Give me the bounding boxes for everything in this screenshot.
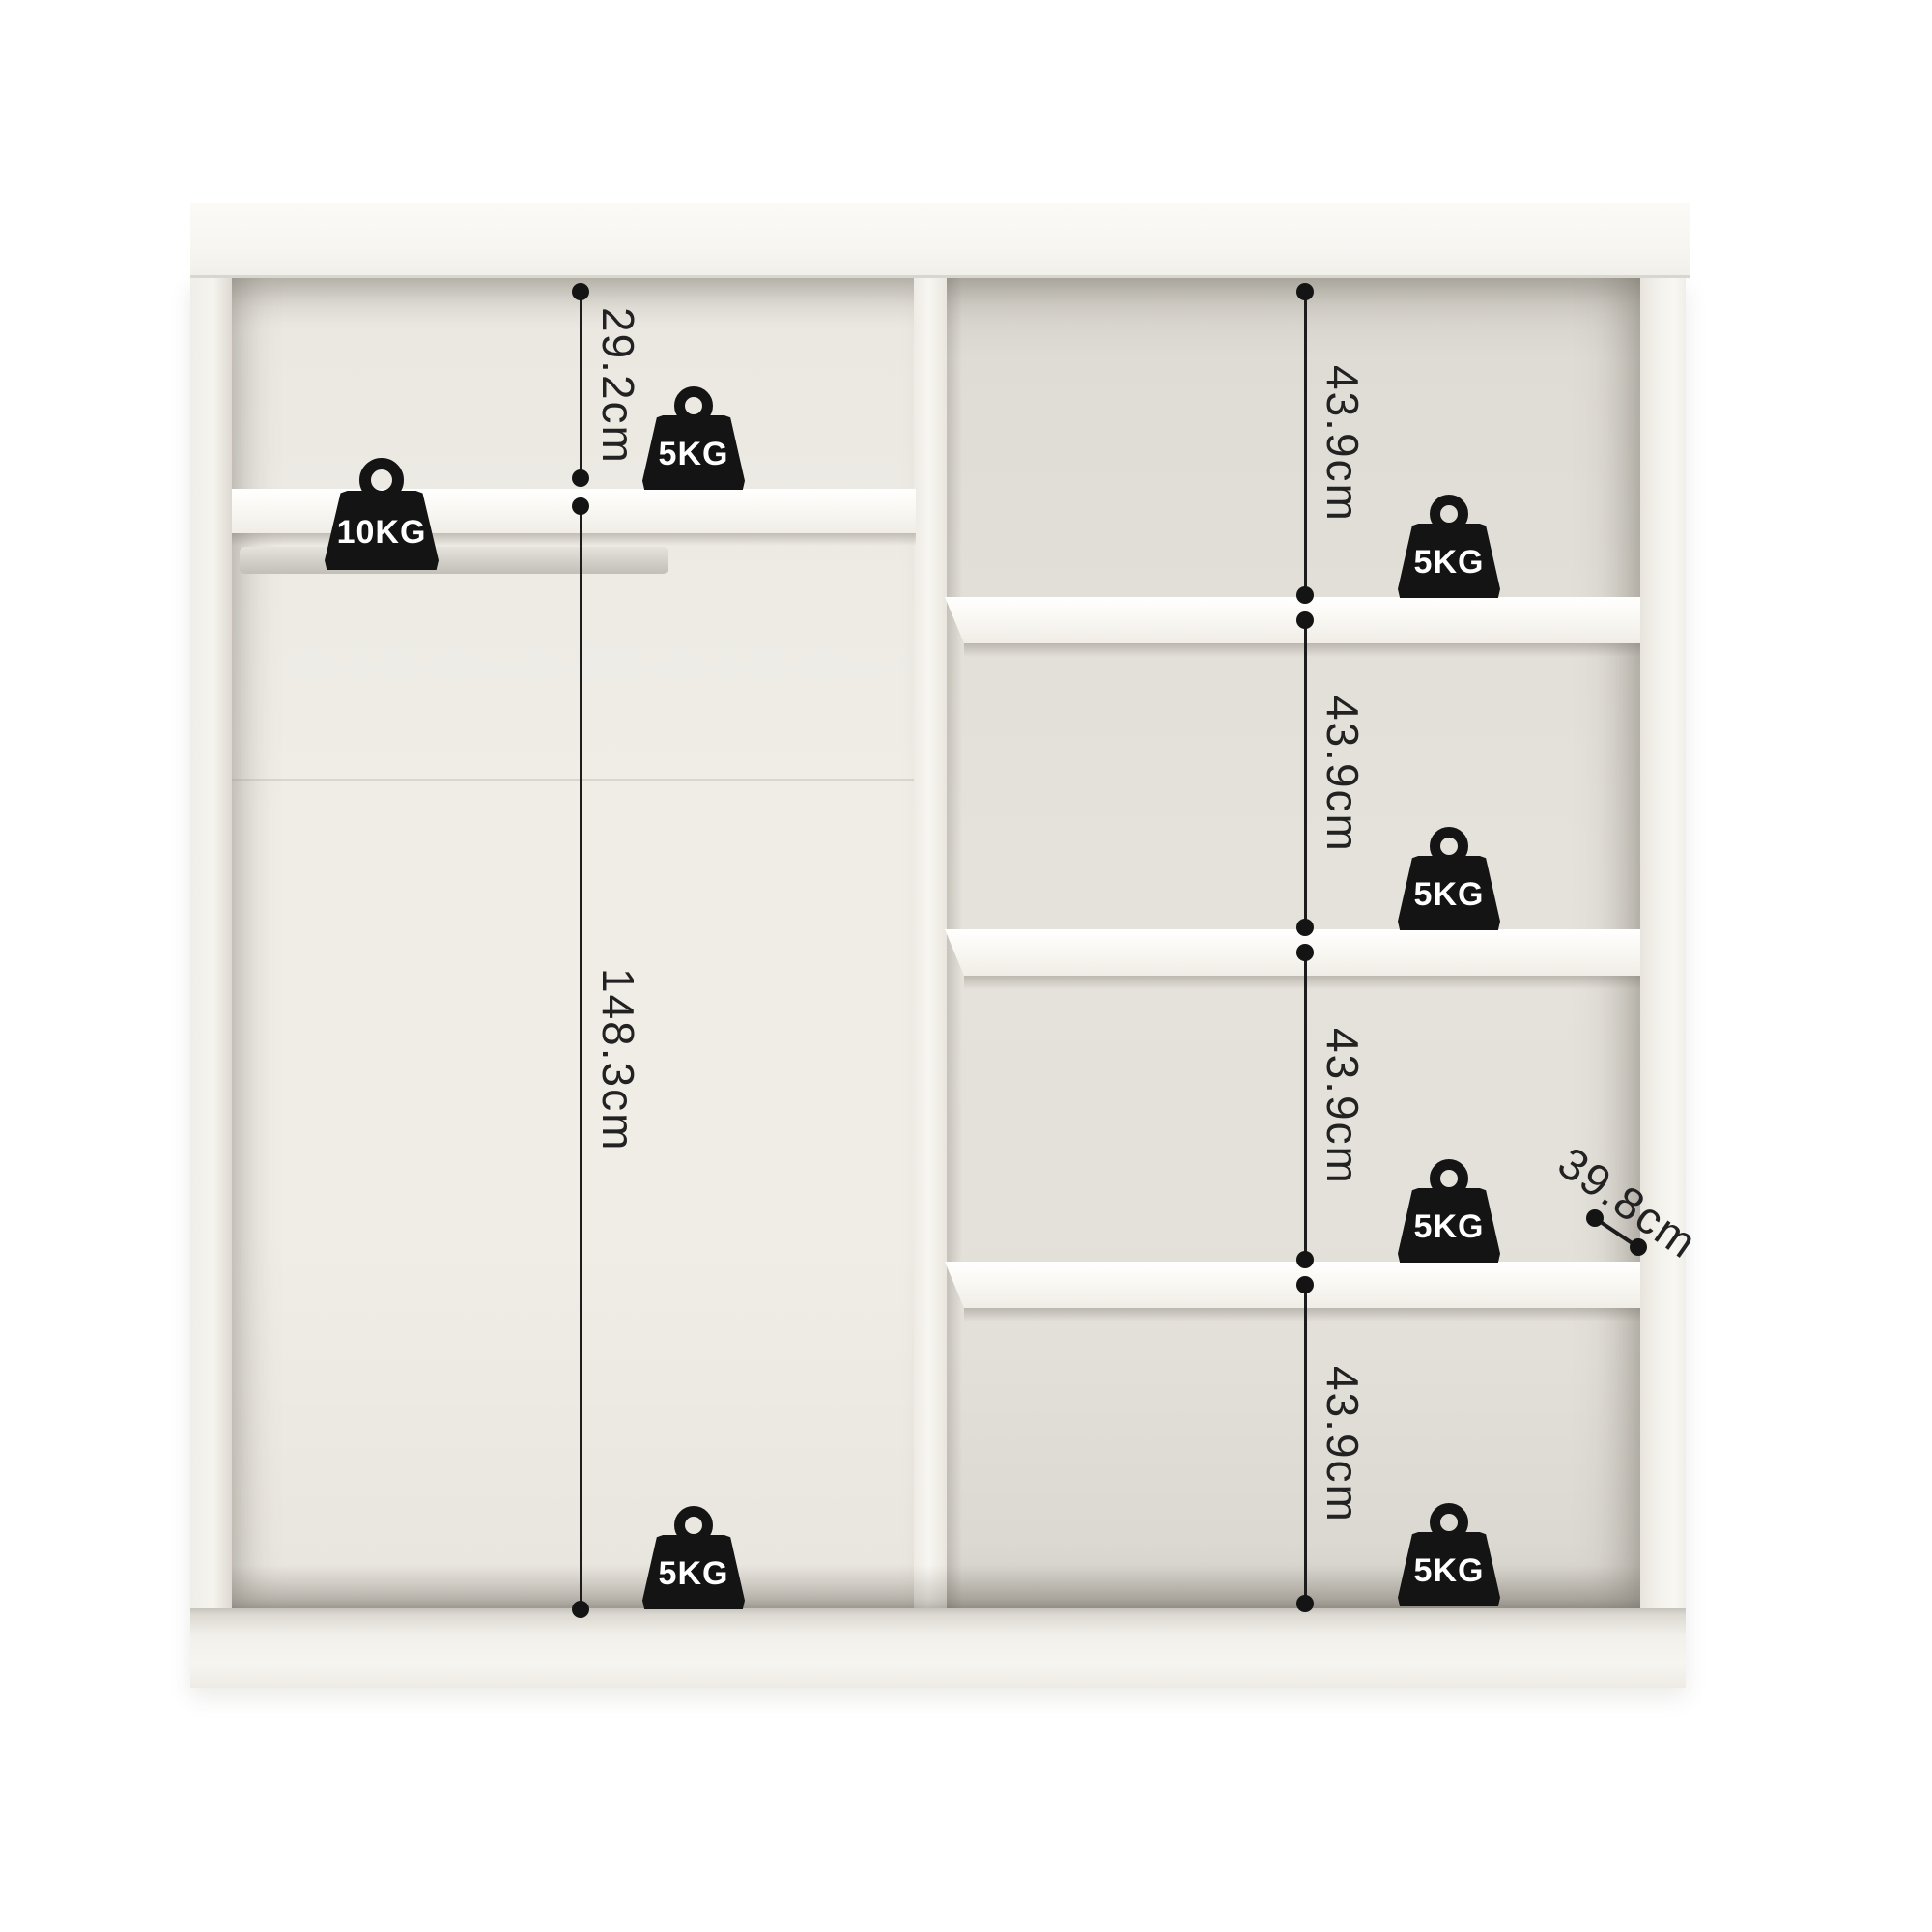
weight-label: 5KG <box>659 436 729 473</box>
right-shelf-1 <box>945 597 1640 643</box>
weight-5kg-icon: 5KG <box>1398 1503 1500 1606</box>
weight-body: 5KG <box>642 1535 745 1609</box>
right-shelf-1-shadow <box>964 643 1640 657</box>
top-panel <box>190 203 1690 278</box>
weight-body: 5KG <box>1398 524 1500 598</box>
weight-label: 5KG <box>1414 1208 1485 1246</box>
weight-5kg-icon: 5KG <box>1398 827 1500 930</box>
weight-5kg-icon: 5KG <box>1398 495 1500 598</box>
dimension-dot <box>1296 1276 1314 1293</box>
weight-10kg-icon: 10KG <box>325 458 439 570</box>
right-side-panel <box>1640 278 1686 1688</box>
dimension-dot <box>1296 611 1314 629</box>
dim-line-cell-3 <box>1304 951 1307 1262</box>
dim-label-left-height: 148.3cm <box>596 968 640 1151</box>
dim-label-cell-1: 43.9cm <box>1321 365 1365 523</box>
right-shelf-3 <box>945 1262 1640 1308</box>
bottom-panel <box>190 1608 1686 1688</box>
dim-label-top-left: 29.2cm <box>596 307 640 465</box>
center-divider-panel <box>914 278 947 1608</box>
dim-line-cell-1 <box>1304 290 1307 597</box>
weight-label: 5KG <box>659 1555 729 1593</box>
dimension-dot <box>1296 586 1314 604</box>
weight-5kg-icon: 5KG <box>642 1506 745 1609</box>
dimension-dot <box>572 497 589 515</box>
weight-label: 5KG <box>1414 876 1485 914</box>
dimension-dot <box>1296 1251 1314 1268</box>
hanging-rod <box>240 547 668 574</box>
weight-label: 5KG <box>1414 1552 1485 1590</box>
dim-line-cell-4 <box>1304 1283 1307 1605</box>
weight-5kg-icon: 5KG <box>642 386 745 490</box>
wardrobe-dimension-diagram: 29.2cm 148.3cm 43.9cm 43.9cm 43.9cm 43.9… <box>0 0 1932 1932</box>
dimension-dot <box>1296 944 1314 961</box>
dimension-dot <box>1296 1595 1314 1612</box>
weight-5kg-icon: 5KG <box>1398 1159 1500 1263</box>
right-shelf-2-shadow <box>964 976 1640 989</box>
weight-body: 5KG <box>642 415 745 490</box>
dimension-dot <box>572 1601 589 1618</box>
dimension-dot <box>572 283 589 300</box>
right-shelf-2 <box>945 929 1640 976</box>
dim-line-148-3 <box>580 504 582 1611</box>
dim-line-cell-2 <box>1304 618 1307 929</box>
dim-label-cell-4: 43.9cm <box>1321 1366 1365 1523</box>
dim-label-cell-2: 43.9cm <box>1321 696 1365 853</box>
right-shelf-3-shadow <box>964 1308 1640 1321</box>
back-panel-seam <box>232 779 916 781</box>
weight-body: 5KG <box>1398 1532 1500 1606</box>
dim-label-cell-3: 43.9cm <box>1321 1028 1365 1185</box>
left-side-panel <box>190 278 232 1688</box>
weight-body: 5KG <box>1398 1188 1500 1263</box>
weight-body: 5KG <box>1398 856 1500 930</box>
weight-label: 5KG <box>1414 544 1485 582</box>
weight-label: 10KG <box>337 514 427 552</box>
weight-body: 10KG <box>325 491 439 570</box>
dimension-dot <box>1296 919 1314 936</box>
dimension-dot <box>1296 283 1314 300</box>
dim-line-29-2 <box>580 290 582 480</box>
dimension-dot <box>572 469 589 487</box>
